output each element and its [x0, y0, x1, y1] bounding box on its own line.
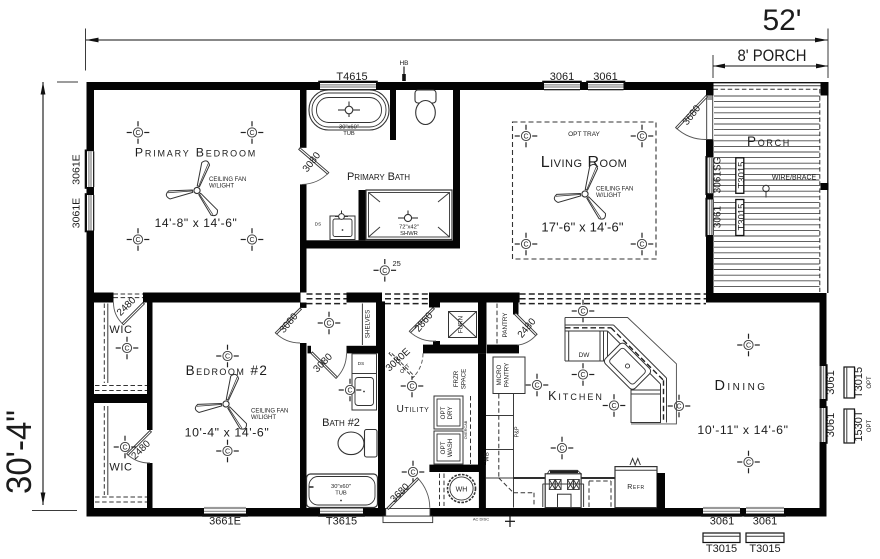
- svg-text:10'-4" x 14'-6": 10'-4" x 14'-6": [185, 426, 270, 440]
- svg-text:CEILING FAN: CEILING FAN: [251, 409, 288, 415]
- svg-text:72"x42": 72"x42": [399, 225, 419, 231]
- svg-text:2480: 2480: [129, 438, 153, 462]
- svg-text:1530T: 1530T: [853, 410, 865, 441]
- svg-text:3061: 3061: [753, 516, 777, 528]
- svg-text:Refr: Refr: [627, 484, 644, 491]
- svg-text:T3015: T3015: [749, 543, 780, 555]
- svg-text:T3015: T3015: [737, 162, 748, 189]
- svg-text:DRY: DRY: [447, 407, 454, 420]
- svg-text:Primary Bedroom: Primary Bedroom: [135, 146, 257, 160]
- svg-text:30'-4": 30'-4": [0, 410, 39, 494]
- svg-text:AC DISC: AC DISC: [473, 517, 489, 522]
- svg-text:W/LIGHT: W/LIGHT: [209, 184, 234, 190]
- svg-text:HB: HB: [399, 60, 408, 67]
- svg-text:T4615: T4615: [336, 71, 367, 83]
- svg-text:3061: 3061: [710, 516, 734, 528]
- svg-text:SPACE: SPACE: [461, 369, 468, 390]
- svg-text:3061E: 3061E: [71, 198, 83, 228]
- svg-text:Primary Bath: Primary Bath: [347, 171, 410, 183]
- svg-text:WASH: WASH: [447, 439, 454, 457]
- svg-text:WIC: WIC: [109, 324, 132, 336]
- svg-text:T3015: T3015: [706, 543, 737, 555]
- svg-text:DW: DW: [579, 352, 591, 359]
- svg-text:FURN: FURN: [458, 316, 465, 333]
- svg-text:WIC: WIC: [109, 462, 132, 474]
- svg-text:PANTRY: PANTRY: [504, 363, 511, 388]
- svg-text:TUB: TUB: [335, 491, 347, 497]
- svg-text:52': 52': [762, 4, 801, 37]
- svg-text:2860: 2860: [413, 310, 436, 334]
- svg-text:CEILING FAN: CEILING FAN: [209, 177, 246, 183]
- svg-text:FRZR: FRZR: [453, 370, 460, 387]
- svg-text:SHELVES: SHELVES: [365, 310, 372, 339]
- svg-text:Dining: Dining: [715, 378, 768, 394]
- svg-text:T3615: T3615: [326, 516, 357, 528]
- svg-text:Bath #2: Bath #2: [322, 417, 360, 429]
- svg-text:30"x60": 30"x60": [339, 125, 359, 131]
- svg-text:CEILING FAN: CEILING FAN: [596, 187, 633, 193]
- svg-text:DS: DS: [358, 361, 364, 366]
- svg-text:WIRE/BRACE: WIRE/BRACE: [772, 175, 817, 182]
- svg-text:OVERCAB: OVERCAB: [464, 420, 468, 439]
- svg-text:OPT: OPT: [440, 406, 447, 419]
- svg-text:30"x60": 30"x60": [331, 484, 351, 490]
- svg-text:3061SG: 3061SG: [713, 156, 724, 193]
- svg-text:SHWR: SHWR: [400, 231, 418, 237]
- svg-text:3061: 3061: [550, 71, 574, 83]
- svg-text:14'-8" x 14'-6": 14'-8" x 14'-6": [155, 216, 238, 230]
- svg-text:WB: WB: [485, 452, 491, 462]
- svg-text:17'-6" x 14'-6": 17'-6" x 14'-6": [541, 220, 623, 235]
- svg-text:Porch: Porch: [747, 134, 791, 149]
- svg-text:3061: 3061: [593, 71, 617, 83]
- svg-text:T3015: T3015: [737, 204, 748, 231]
- svg-text:3061: 3061: [825, 370, 837, 394]
- svg-text:OPT: OPT: [867, 420, 873, 433]
- svg-text:WH: WH: [456, 487, 468, 494]
- svg-text:PANTRY: PANTRY: [502, 312, 509, 338]
- svg-text:25: 25: [393, 259, 401, 268]
- svg-text:3061E: 3061E: [71, 154, 83, 184]
- svg-text:3680: 3680: [681, 103, 704, 128]
- svg-text:3680: 3680: [388, 481, 412, 505]
- svg-text:3061: 3061: [825, 413, 837, 437]
- svg-text:10'-11" x 14'-6": 10'-11" x 14'-6": [697, 423, 788, 437]
- svg-text:Utility: Utility: [397, 404, 430, 415]
- svg-text:OPT: OPT: [867, 376, 873, 389]
- svg-text:3061: 3061: [713, 205, 724, 228]
- svg-text:W/LIGHT: W/LIGHT: [596, 193, 621, 199]
- svg-text:8' PORCH: 8' PORCH: [738, 46, 807, 65]
- svg-text:3080: 3080: [278, 311, 301, 335]
- svg-text:OPT: OPT: [440, 441, 447, 454]
- svg-text:3661E: 3661E: [209, 516, 241, 528]
- svg-text:2480: 2480: [115, 295, 139, 319]
- svg-text:OPT TRAY: OPT TRAY: [568, 131, 600, 138]
- svg-text:T3015: T3015: [853, 367, 865, 398]
- svg-text:Kitchen: Kitchen: [548, 389, 604, 403]
- svg-text:DS: DS: [315, 222, 321, 227]
- svg-text:P&P: P&P: [515, 426, 521, 437]
- svg-text:TUB: TUB: [343, 131, 355, 137]
- svg-text:MICRO: MICRO: [496, 365, 503, 386]
- svg-text:Living Room: Living Room: [541, 154, 628, 171]
- svg-text:W/LIGHT: W/LIGHT: [251, 415, 276, 421]
